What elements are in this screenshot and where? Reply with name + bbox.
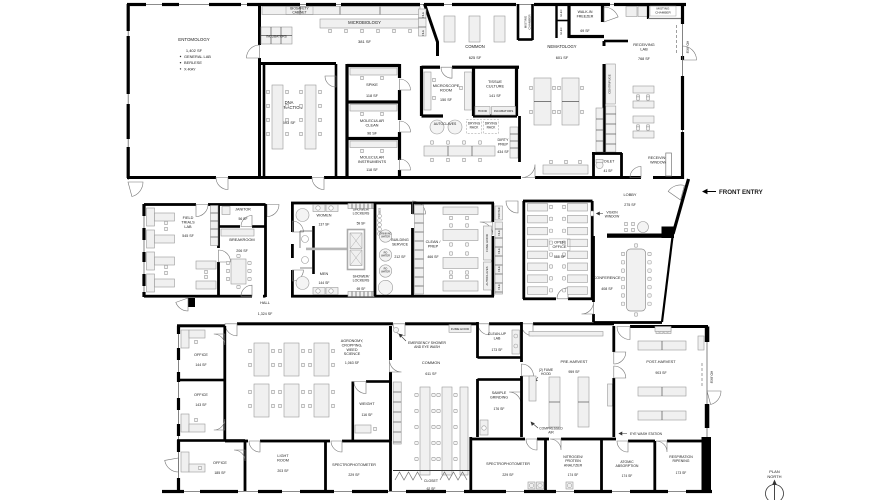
svg-text:116 SF: 116 SF [361, 413, 372, 417]
svg-text:BERLESE: BERLESE [184, 60, 202, 65]
svg-text:903 SF: 903 SF [655, 371, 666, 375]
svg-text:FILE: FILE [497, 284, 501, 290]
svg-text:CHAMBER: CHAMBER [655, 10, 671, 14]
svg-text:FILE: FILE [421, 30, 425, 36]
svg-text:LOCKERS: LOCKERS [353, 212, 370, 216]
svg-text:WATER: WATER [381, 236, 390, 239]
svg-text:ENTOMOLOGY: ENTOMOLOGY [178, 37, 209, 42]
svg-text:229 SF: 229 SF [502, 473, 513, 477]
svg-text:OFFICE: OFFICE [194, 393, 208, 397]
svg-text:1,063 SF: 1,063 SF [345, 361, 359, 365]
svg-text:BUILDING: BUILDING [391, 238, 409, 242]
svg-text:SERVICE: SERVICE [392, 242, 409, 246]
svg-text:CABINET: CABINET [292, 11, 306, 15]
svg-text:LOCKERS: LOCKERS [353, 279, 370, 283]
svg-text:LOBBY: LOBBY [624, 192, 637, 197]
svg-text:FUME HOOD: FUME HOOD [485, 234, 489, 252]
svg-text:69 SF: 69 SF [580, 29, 589, 33]
svg-text:CLEAN /: CLEAN / [426, 240, 442, 244]
svg-text:WATER: WATER [381, 271, 390, 274]
svg-text:NORTH: NORTH [767, 474, 781, 479]
svg-text:AUTOCLAVES: AUTOCLAVES [485, 266, 489, 285]
svg-text:TOILET: TOILET [602, 160, 616, 164]
svg-text:275 SF: 275 SF [624, 203, 636, 207]
svg-text:1,324 SF: 1,324 SF [258, 312, 273, 316]
svg-text:ELEC: ELEC [559, 27, 563, 34]
svg-text:X-RAY: X-RAY [184, 66, 196, 71]
svg-text:69 SF: 69 SF [357, 287, 366, 291]
svg-text:FUME HOOD: FUME HOOD [451, 327, 470, 331]
svg-text:ELEC: ELEC [559, 9, 563, 16]
svg-text:PRINTER: PRINTER [497, 207, 501, 219]
svg-text:144 SF: 144 SF [195, 363, 206, 367]
svg-text:AGRONOMY,: AGRONOMY, [341, 339, 363, 343]
svg-text:BREAKROOM: BREAKROOM [229, 237, 254, 242]
svg-text:WINDOW: WINDOW [650, 160, 666, 164]
svg-text:LAB: LAB [494, 336, 501, 340]
svg-text:ROOM: ROOM [277, 459, 289, 463]
svg-text:POST-HARVEST: POST-HARVEST [646, 360, 676, 364]
svg-text:768 SF: 768 SF [638, 57, 651, 61]
svg-text:118 SF: 118 SF [366, 168, 378, 172]
svg-text:NEMATOLOGY: NEMATOLOGY [547, 44, 576, 49]
svg-text:176 SF: 176 SF [494, 407, 505, 411]
svg-text:INSTRUMENTS: INSTRUMENTS [358, 159, 387, 164]
svg-text:381 SF: 381 SF [358, 39, 371, 44]
svg-text:96 SF: 96 SF [367, 132, 378, 136]
svg-text:PREP: PREP [498, 142, 509, 146]
svg-text:229 SF: 229 SF [348, 473, 359, 477]
svg-text:CLEAN: CLEAN [366, 123, 379, 128]
svg-text:WOMEN: WOMEN [317, 214, 332, 218]
svg-text:150 SF: 150 SF [440, 98, 453, 102]
svg-text:AIR: AIR [548, 431, 554, 435]
svg-text:212 SF: 212 SF [394, 255, 405, 259]
svg-text:41 SF: 41 SF [603, 169, 612, 173]
svg-text:545 SF: 545 SF [182, 234, 194, 238]
svg-text:FILE: FILE [497, 230, 501, 236]
svg-text:593 SF: 593 SF [283, 120, 296, 125]
svg-text:INCUBATORS: INCUBATORS [494, 109, 513, 113]
svg-text:OFFICE: OFFICE [553, 245, 567, 249]
svg-text:RECEIVING: RECEIVING [648, 156, 668, 160]
svg-text:HOOD: HOOD [541, 372, 552, 376]
svg-text:625 SF: 625 SF [469, 55, 482, 60]
svg-text:ROOM: ROOM [440, 88, 452, 93]
svg-text:COMMON: COMMON [465, 44, 485, 49]
svg-text:CROPPING,: CROPPING, [342, 343, 363, 347]
svg-text:MICROBIOLOGY: MICROBIOLOGY [348, 20, 381, 25]
svg-text:174 SF: 174 SF [622, 474, 633, 478]
svg-text:LAB: LAB [640, 47, 648, 52]
svg-text:CENTRIFUGE: CENTRIFUGE [608, 74, 612, 94]
svg-text:AUTOCLAVES: AUTOCLAVES [434, 122, 457, 126]
svg-text:PRE-HARVEST: PRE-HARVEST [561, 360, 589, 364]
svg-text:FREEZER: FREEZER [577, 14, 594, 18]
svg-text:RACK: RACK [487, 126, 497, 130]
svg-text:RACK: RACK [470, 126, 480, 130]
svg-text:118 SF: 118 SF [366, 94, 379, 98]
svg-text:RIPENING: RIPENING [673, 459, 690, 463]
svg-text:FIELD: FIELD [183, 216, 194, 220]
svg-text:62 SF: 62 SF [427, 487, 436, 491]
svg-text:203 SF: 203 SF [277, 469, 288, 473]
svg-text:CLOSET: CLOSET [424, 479, 439, 483]
svg-text:FILE: FILE [421, 12, 425, 18]
svg-text:AND EYE WASH: AND EYE WASH [414, 345, 440, 349]
svg-text:206 SF: 206 SF [236, 249, 248, 253]
svg-text:DIRTY: DIRTY [498, 138, 510, 142]
svg-text:173 SF: 173 SF [676, 471, 687, 475]
svg-text:141 SF: 141 SF [489, 94, 502, 98]
svg-text:137 SF: 137 SF [319, 223, 330, 227]
svg-text:CULTURE: CULTURE [486, 84, 504, 89]
svg-text:INCUBATORS: INCUBATORS [266, 35, 287, 39]
svg-text:OFFICE: OFFICE [213, 461, 227, 465]
svg-text:WEED: WEED [346, 348, 357, 352]
svg-text:HALL: HALL [260, 300, 271, 305]
svg-text:SPIKE: SPIKE [366, 82, 378, 87]
svg-text:8'X8' OH: 8'X8' OH [710, 370, 714, 383]
svg-text:MEN: MEN [320, 272, 329, 276]
svg-text:588 SF: 588 SF [554, 255, 565, 259]
svg-text:CHAMBER: CHAMBER [528, 14, 532, 30]
svg-text:56 SF: 56 SF [238, 217, 247, 221]
svg-text:1,402 SF: 1,402 SF [186, 48, 203, 53]
svg-text:WEIGHT: WEIGHT [359, 402, 375, 406]
svg-text:WINDOW: WINDOW [605, 215, 620, 219]
svg-text:185 SF: 185 SF [214, 471, 225, 475]
svg-text:143 SF: 143 SF [195, 403, 206, 407]
svg-text:GENERAL LAB: GENERAL LAB [184, 54, 211, 59]
svg-text:59 SF: 59 SF [357, 222, 366, 226]
svg-text:466 SF: 466 SF [427, 255, 438, 259]
svg-text:SPECTROPHOTOMETER: SPECTROPHOTOMETER [486, 462, 530, 466]
svg-text:EYE WASH STATION: EYE WASH STATION [630, 432, 663, 436]
svg-text:COMMON: COMMON [422, 360, 440, 365]
svg-text:ANALYZER: ANALYZER [564, 463, 583, 467]
svg-text:LAB: LAB [184, 225, 192, 229]
svg-text:GRINDING: GRINDING [490, 395, 508, 399]
svg-text:SPECTROPHOTOMETER: SPECTROPHOTOMETER [332, 463, 376, 467]
svg-text:FILE: FILE [497, 266, 501, 272]
svg-text:ABSORPTION: ABSORPTION [616, 464, 639, 468]
svg-text:LIGHT: LIGHT [277, 454, 289, 458]
svg-text:TRIALS: TRIALS [181, 221, 195, 225]
svg-text:JANITOR: JANITOR [235, 208, 251, 212]
svg-text:SCIENCE: SCIENCE [344, 352, 361, 356]
svg-text:PREP: PREP [428, 245, 439, 249]
svg-text:OPEN: OPEN [554, 241, 565, 245]
svg-text:601 SF: 601 SF [556, 55, 569, 60]
svg-text:611 SF: 611 SF [425, 372, 437, 376]
svg-text:OFFICE: OFFICE [194, 353, 208, 357]
svg-text:173 SF: 173 SF [492, 348, 503, 352]
svg-text:CONFERENCE: CONFERENCE [593, 275, 621, 280]
svg-text:WATER: WATER [381, 255, 390, 258]
svg-text:HOOD: HOOD [478, 109, 488, 113]
svg-text:959 SF: 959 SF [568, 370, 579, 374]
svg-text:434 SF: 434 SF [497, 150, 509, 154]
svg-text:408 SF: 408 SF [601, 287, 613, 291]
svg-text:FRONT ENTRY: FRONT ENTRY [719, 189, 764, 196]
svg-text:174 SF: 174 SF [568, 473, 579, 477]
svg-text:144 SF: 144 SF [319, 281, 330, 285]
svg-text:FILE: FILE [497, 248, 501, 254]
